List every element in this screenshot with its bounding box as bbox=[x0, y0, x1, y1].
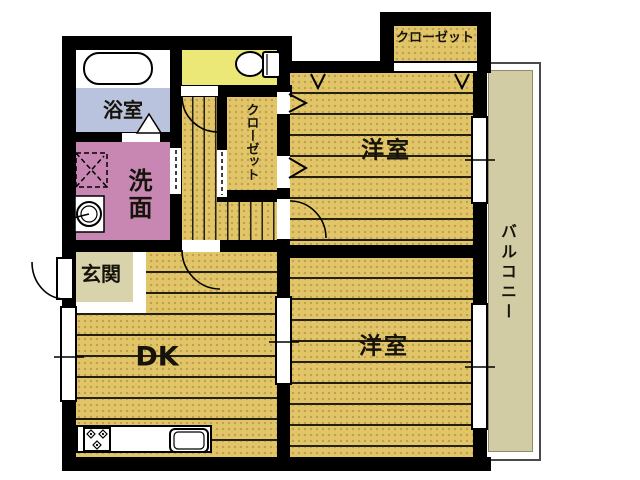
entrance-label: 玄関 bbox=[81, 264, 121, 284]
hallway-lower bbox=[217, 202, 277, 243]
bedroom-top-closet-gap-2 bbox=[277, 156, 290, 188]
washroom-label: 洗面 bbox=[126, 168, 150, 222]
wall-dk-top bbox=[62, 240, 290, 252]
bedroom-top-label: 洋室 bbox=[361, 140, 411, 163]
hall-closet-label: クローゼット bbox=[245, 103, 258, 181]
dk-label: DK bbox=[135, 344, 178, 371]
washroom-sliding-door bbox=[170, 148, 181, 194]
sliding-door-dk-bedroom bbox=[275, 296, 292, 385]
wall-bedrooms-divider bbox=[277, 245, 487, 258]
bedroom-bottom-label: 洋室 bbox=[359, 336, 409, 359]
toilet-door bbox=[181, 86, 218, 96]
wall-left bbox=[62, 36, 76, 471]
toilet-room bbox=[178, 48, 278, 85]
bathroom-door-gap bbox=[122, 133, 160, 142]
bathroom-label: 浴室 bbox=[103, 100, 143, 120]
floorplan: 浴室 洗面 玄関 DK 洋室 洋室 クローゼット クローゼット バルコニー bbox=[0, 0, 640, 480]
top-closet-label: クローゼット bbox=[396, 32, 474, 45]
topcloset-sliding-door bbox=[394, 61, 477, 73]
wall-bottom bbox=[62, 457, 491, 471]
entrance-door-leaf bbox=[56, 257, 74, 300]
window-bedroom-bottom bbox=[471, 303, 488, 430]
entrance-step-bottom bbox=[76, 302, 146, 313]
hall-dk-door-gap bbox=[182, 240, 220, 252]
wall-bath-right bbox=[170, 36, 182, 252]
bedroom-top-door-gap bbox=[277, 199, 290, 239]
window-dk bbox=[60, 306, 77, 402]
washroom-room bbox=[76, 142, 170, 240]
hallway bbox=[182, 97, 217, 243]
hallcloset-sliding-door bbox=[217, 150, 227, 197]
kitchen-counter bbox=[76, 425, 212, 453]
wall-topcloset-top bbox=[380, 12, 491, 26]
balcony-label: バルコニー bbox=[499, 223, 515, 323]
window-bedroom-top bbox=[471, 116, 488, 204]
bedroom-top-closet-gap-1 bbox=[277, 92, 290, 114]
bathroom-tub-area bbox=[76, 50, 170, 88]
